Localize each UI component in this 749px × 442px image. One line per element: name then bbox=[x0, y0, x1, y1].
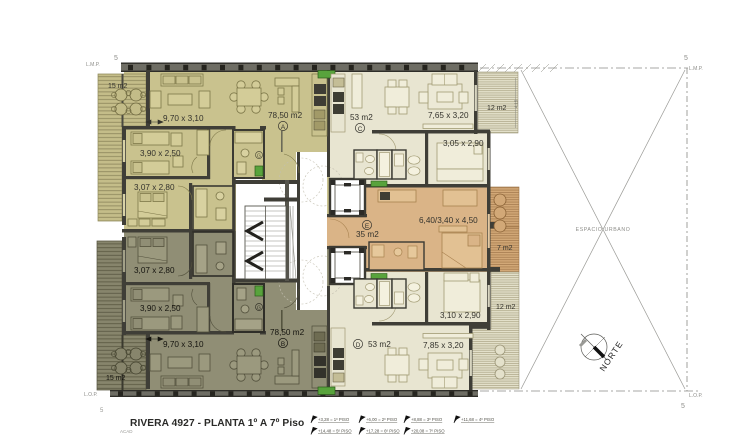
svg-text:9,70 x 3,10: 9,70 x 3,10 bbox=[163, 340, 204, 349]
svg-text:+3,28 = 1º PISO: +3,28 = 1º PISO bbox=[318, 417, 350, 422]
svg-text:9,70 x 3,10: 9,70 x 3,10 bbox=[163, 114, 204, 123]
svg-text:E: E bbox=[365, 223, 369, 230]
svg-text:RIVERA 4927 - PLANTA 1º A 7º: RIVERA 4927 - PLANTA 1º A 7º Piso bbox=[130, 418, 304, 429]
svg-text:12 m2: 12 m2 bbox=[487, 105, 507, 112]
svg-text:3,10 x 2,90: 3,10 x 2,90 bbox=[440, 311, 481, 320]
svg-text:3,07 x 2,80: 3,07 x 2,80 bbox=[134, 183, 175, 192]
svg-text:53 m2: 53 m2 bbox=[368, 340, 391, 349]
svg-text:+6,00 = 2º PISO: +6,00 = 2º PISO bbox=[366, 417, 398, 422]
svg-text:A: A bbox=[281, 124, 286, 131]
svg-text:ACAD: ACAD bbox=[120, 429, 133, 434]
svg-text:L.M.P.: L.M.P. bbox=[689, 66, 703, 72]
svg-text:5: 5 bbox=[684, 55, 688, 62]
svg-text:7 m2: 7 m2 bbox=[497, 245, 513, 252]
svg-text:L.O.P.: L.O.P. bbox=[84, 392, 98, 398]
svg-text:+8,88 = 3º PISO: +8,88 = 3º PISO bbox=[411, 417, 443, 422]
svg-text:C: C bbox=[358, 126, 363, 133]
svg-text:78,50 m2: 78,50 m2 bbox=[268, 111, 303, 120]
svg-text:+11,68 = 4º PISO: +11,68 = 4º PISO bbox=[461, 417, 495, 422]
svg-text:15 m2: 15 m2 bbox=[106, 375, 126, 382]
svg-text:78,50 m2: 78,50 m2 bbox=[270, 328, 305, 337]
svg-text:L.O.P.: L.O.P. bbox=[689, 393, 703, 399]
svg-text:7,85 x 3,20: 7,85 x 3,20 bbox=[423, 341, 464, 350]
svg-text:4,15: 4,15 bbox=[514, 99, 519, 108]
svg-text:+20,08 = 7º PISO: +20,08 = 7º PISO bbox=[411, 429, 445, 434]
svg-text:53 m2: 53 m2 bbox=[350, 113, 373, 122]
svg-text:D: D bbox=[356, 342, 361, 349]
svg-text:+17,28 = 6º PISO: +17,28 = 6º PISO bbox=[366, 429, 400, 434]
svg-text:7,65 x 3,20: 7,65 x 3,20 bbox=[428, 111, 469, 120]
svg-text:3,90 x 2,50: 3,90 x 2,50 bbox=[140, 149, 181, 158]
svg-text:35 m2: 35 m2 bbox=[356, 230, 379, 239]
svg-text:3,05 x 2,90: 3,05 x 2,90 bbox=[443, 139, 484, 148]
svg-text:5: 5 bbox=[681, 403, 685, 410]
svg-text:G: G bbox=[257, 306, 261, 312]
svg-text:G: G bbox=[257, 154, 261, 160]
svg-text:B: B bbox=[281, 341, 285, 348]
svg-text:L.M.P.: L.M.P. bbox=[86, 62, 100, 68]
svg-text:6,40/3,40 x 4,50: 6,40/3,40 x 4,50 bbox=[419, 216, 478, 225]
svg-text:ESPACIO URBANO: ESPACIO URBANO bbox=[576, 227, 631, 233]
svg-text:3,07 x 2,80: 3,07 x 2,80 bbox=[134, 266, 175, 275]
svg-text:5: 5 bbox=[114, 55, 118, 62]
svg-text:+14,48 = 5º PISO: +14,48 = 5º PISO bbox=[318, 429, 352, 434]
svg-text:12 m2: 12 m2 bbox=[496, 304, 516, 311]
svg-text:15 m2: 15 m2 bbox=[108, 83, 128, 90]
svg-text:3,90 x 2,50: 3,90 x 2,50 bbox=[140, 304, 181, 313]
